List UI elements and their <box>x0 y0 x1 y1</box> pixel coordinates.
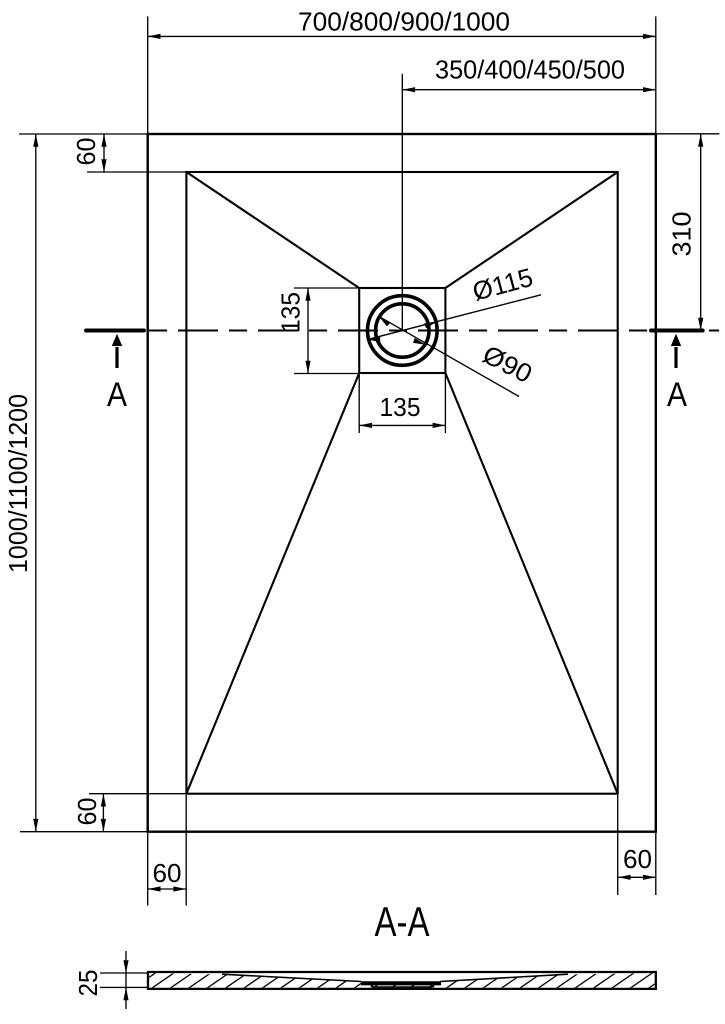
svg-text:25: 25 <box>73 970 103 997</box>
svg-text:700/800/900/1000: 700/800/900/1000 <box>298 7 510 37</box>
svg-text:350/400/450/500: 350/400/450/500 <box>435 55 625 85</box>
svg-text:1000/1100/1200: 1000/1100/1200 <box>3 394 33 573</box>
svg-text:310: 310 <box>667 212 697 257</box>
svg-text:60: 60 <box>71 138 101 166</box>
svg-text:135: 135 <box>380 392 421 422</box>
svg-text:135: 135 <box>276 292 306 333</box>
svg-text:A: A <box>107 376 127 414</box>
svg-text:A: A <box>667 376 687 414</box>
svg-text:60: 60 <box>72 798 102 826</box>
svg-text:A-A: A-A <box>375 898 430 945</box>
svg-text:60: 60 <box>153 858 182 888</box>
svg-text:60: 60 <box>623 844 652 874</box>
